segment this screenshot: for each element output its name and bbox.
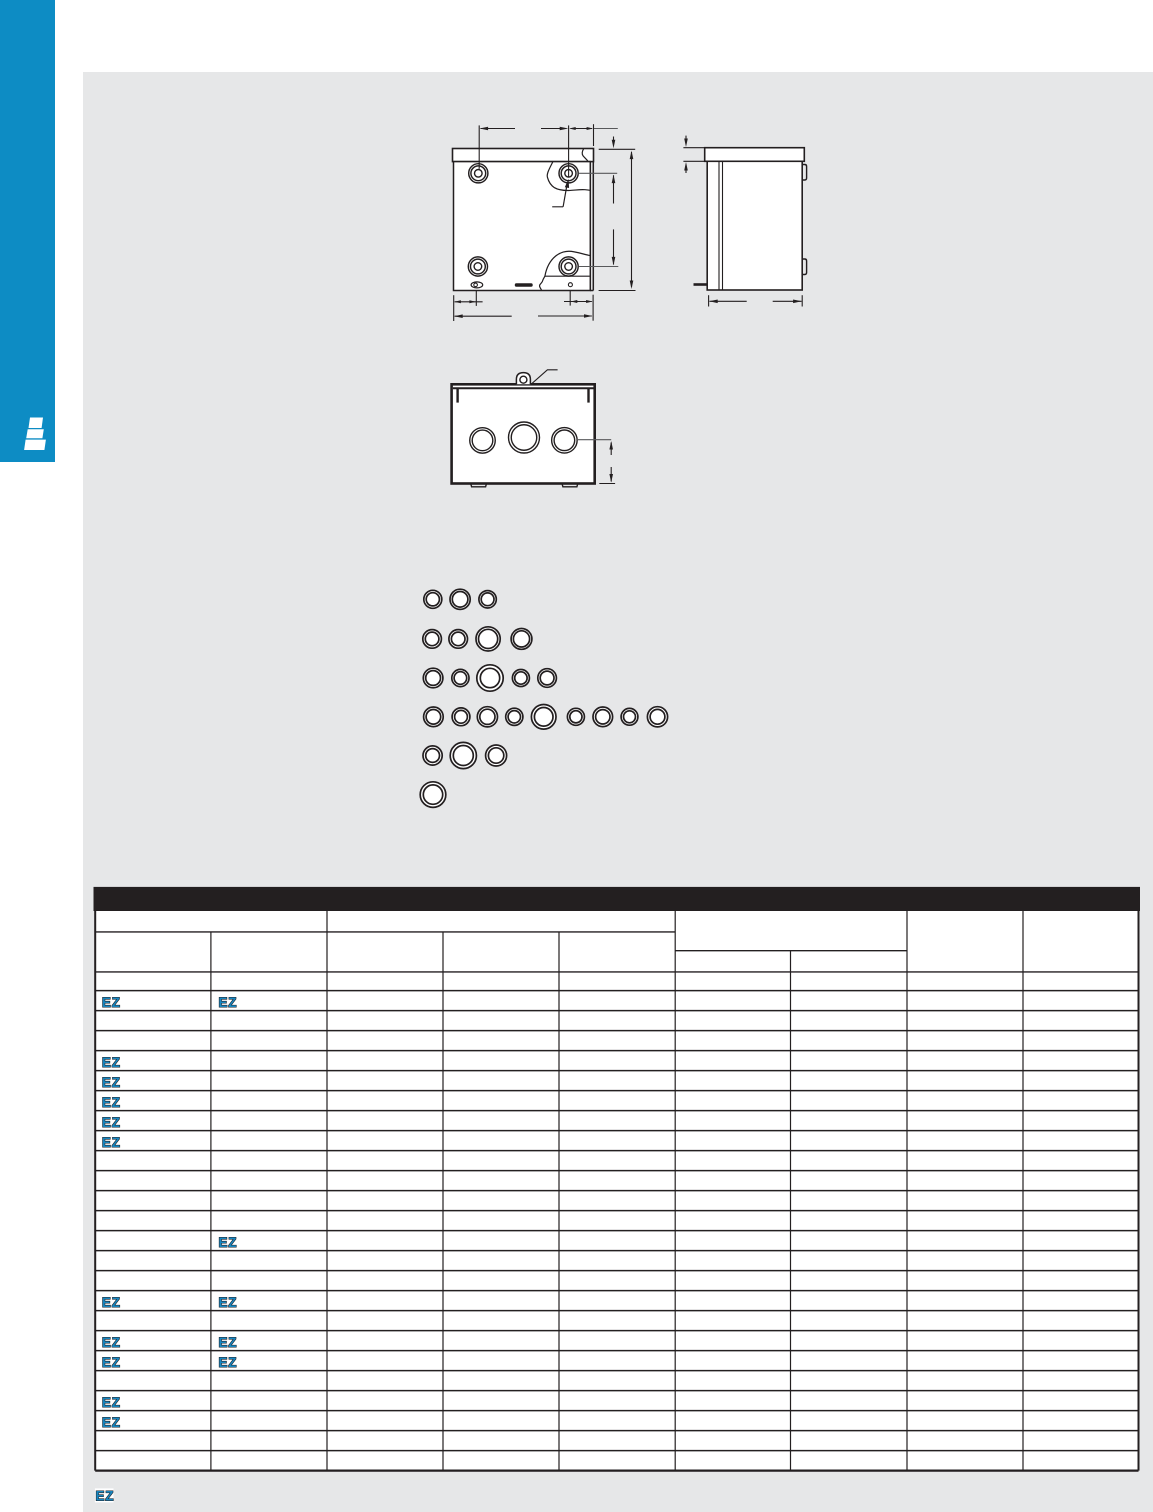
svg-text:EZ: EZ	[102, 1335, 120, 1350]
svg-text:EZ: EZ	[219, 1235, 237, 1250]
svg-text:EZ: EZ	[102, 1295, 120, 1310]
svg-text:EZ: EZ	[96, 1489, 114, 1504]
svg-text:EZ: EZ	[102, 1095, 120, 1110]
svg-text:EZ: EZ	[102, 995, 120, 1010]
svg-text:EZ: EZ	[102, 1055, 120, 1070]
svg-text:EZ: EZ	[102, 1075, 120, 1090]
svg-text:EZ: EZ	[102, 1415, 120, 1430]
svg-text:EZ: EZ	[219, 1355, 237, 1370]
svg-text:EZ: EZ	[102, 1395, 120, 1410]
svg-text:EZ: EZ	[219, 1335, 237, 1350]
svg-text:EZ: EZ	[219, 995, 237, 1010]
svg-text:EZ: EZ	[219, 1295, 237, 1310]
svg-text:EZ: EZ	[102, 1135, 120, 1150]
svg-text:EZ: EZ	[102, 1355, 120, 1370]
svg-text:EZ: EZ	[102, 1115, 120, 1130]
